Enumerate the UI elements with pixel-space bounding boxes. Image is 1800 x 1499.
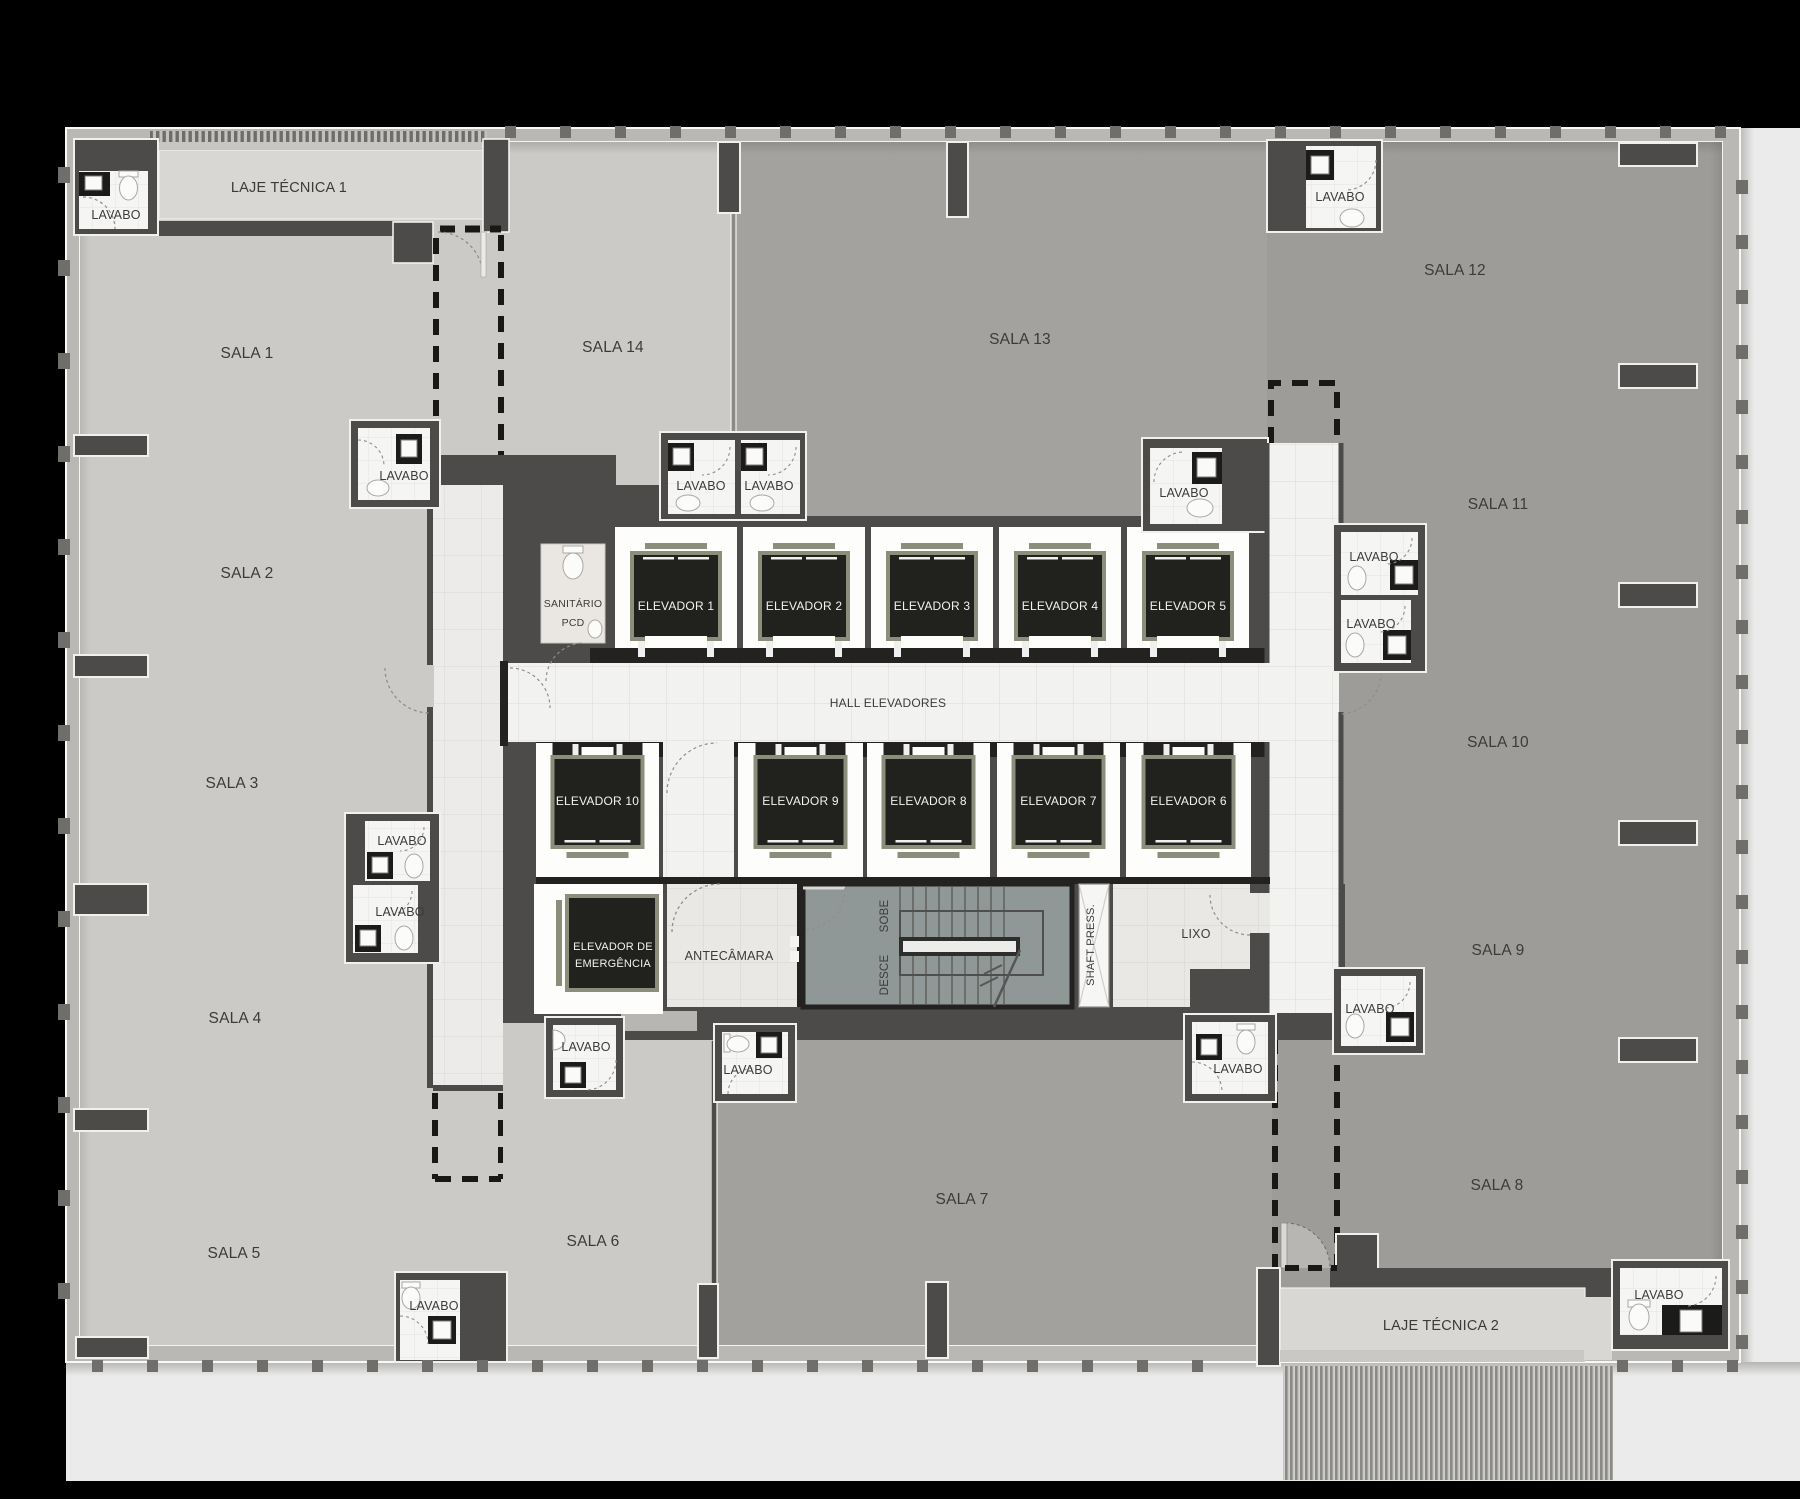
svg-text:SHAFT PRESS.: SHAFT PRESS.	[1085, 904, 1097, 986]
svg-text:LAVABO: LAVABO	[676, 479, 725, 493]
svg-text:SALA 9: SALA 9	[1472, 942, 1525, 959]
svg-text:LAVABO: LAVABO	[409, 1299, 458, 1313]
svg-text:SALA 8: SALA 8	[1471, 1177, 1524, 1194]
svg-text:ELEVADOR 6: ELEVADOR 6	[1150, 794, 1227, 808]
svg-text:LAVABO: LAVABO	[379, 469, 428, 483]
svg-text:SOBE: SOBE	[879, 899, 891, 932]
svg-text:ELEVADOR 7: ELEVADOR 7	[1020, 794, 1097, 808]
svg-text:LAVABO: LAVABO	[744, 479, 793, 493]
svg-text:ELEVADOR 9: ELEVADOR 9	[762, 794, 839, 808]
svg-text:LAJE TÉCNICA 1: LAJE TÉCNICA 1	[231, 179, 347, 196]
svg-text:SALA 3: SALA 3	[206, 775, 259, 792]
svg-text:SALA 5: SALA 5	[208, 1245, 261, 1262]
svg-text:ELEVADOR DE: ELEVADOR DE	[573, 941, 653, 953]
svg-text:SALA 14: SALA 14	[582, 339, 644, 356]
svg-text:LAVABO: LAVABO	[723, 1063, 772, 1077]
svg-text:DESCE: DESCE	[879, 955, 891, 996]
svg-text:SALA 6: SALA 6	[567, 1233, 620, 1250]
svg-text:LAJE TÉCNICA 2: LAJE TÉCNICA 2	[1383, 1317, 1499, 1334]
svg-text:LAVABO: LAVABO	[1346, 617, 1395, 631]
svg-text:ELEVADOR 3: ELEVADOR 3	[894, 599, 971, 613]
svg-text:ELEVADOR 2: ELEVADOR 2	[766, 599, 843, 613]
svg-text:LAVABO: LAVABO	[1634, 1288, 1683, 1302]
svg-text:ELEVADOR 8: ELEVADOR 8	[890, 794, 967, 808]
svg-text:LAVABO: LAVABO	[1159, 486, 1208, 500]
svg-text:SALA 2: SALA 2	[221, 565, 274, 582]
svg-text:PCD: PCD	[562, 617, 585, 629]
svg-text:LAVABO: LAVABO	[1315, 190, 1364, 204]
svg-text:SALA 10: SALA 10	[1467, 734, 1529, 751]
svg-text:LAVABO: LAVABO	[1213, 1062, 1262, 1076]
svg-text:SALA 12: SALA 12	[1424, 262, 1486, 279]
svg-text:LAVABO: LAVABO	[561, 1040, 610, 1054]
svg-text:HALL ELEVADORES: HALL ELEVADORES	[830, 696, 946, 710]
svg-text:LAVABO: LAVABO	[1349, 550, 1398, 564]
svg-text:ELEVADOR 1: ELEVADOR 1	[638, 599, 715, 613]
svg-text:LAVABO: LAVABO	[1345, 1002, 1394, 1016]
svg-text:SALA 11: SALA 11	[1468, 496, 1529, 513]
svg-text:ELEVADOR 5: ELEVADOR 5	[1150, 599, 1227, 613]
svg-text:ANTECÂMARA: ANTECÂMARA	[685, 948, 774, 963]
svg-text:LIXO: LIXO	[1181, 927, 1210, 941]
svg-text:EMERGÊNCIA: EMERGÊNCIA	[575, 957, 651, 970]
svg-text:SALA 1: SALA 1	[221, 345, 274, 362]
svg-text:ELEVADOR 4: ELEVADOR 4	[1022, 599, 1099, 613]
svg-text:SALA 13: SALA 13	[989, 331, 1051, 348]
svg-text:ELEVADOR 10: ELEVADOR 10	[556, 794, 639, 808]
svg-text:SANITÁRIO: SANITÁRIO	[544, 597, 602, 610]
svg-text:LAVABO: LAVABO	[377, 834, 426, 848]
svg-text:LAVABO: LAVABO	[91, 208, 140, 222]
svg-text:LAVABO: LAVABO	[375, 905, 424, 919]
svg-text:SALA 4: SALA 4	[209, 1010, 262, 1027]
svg-text:SALA 7: SALA 7	[936, 1191, 989, 1208]
